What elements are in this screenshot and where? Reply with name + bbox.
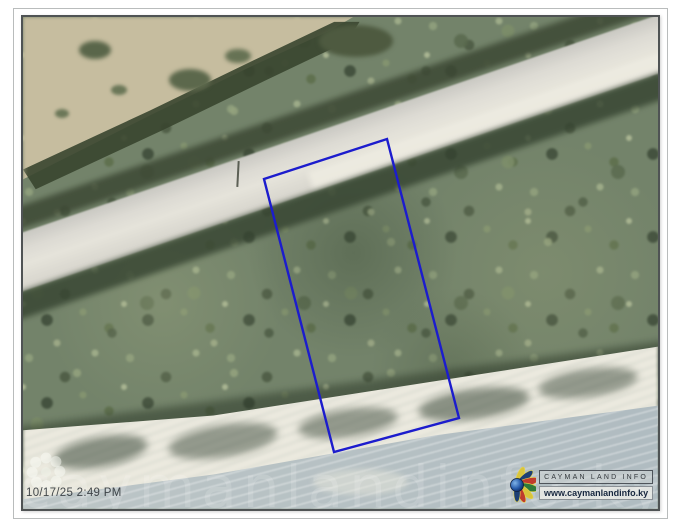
map-frame: caymanlandinfo.ky 10/17/25 2:49 PM [21, 15, 660, 511]
parcel-outline [264, 139, 459, 452]
logo-org-name: CAYMAN LAND INFO [539, 470, 653, 484]
logo-website-url: www.caymanlandinfo.ky [539, 486, 653, 500]
cayman-land-info-logo-icon [502, 466, 536, 504]
map-export-page: caymanlandinfo.ky 10/17/25 2:49 PM [0, 0, 675, 529]
aerial-photo: caymanlandinfo.ky 10/17/25 2:49 PM [23, 17, 658, 509]
outer-frame: caymanlandinfo.ky 10/17/25 2:49 PM [13, 8, 668, 519]
timestamp: 10/17/25 2:49 PM [26, 487, 122, 499]
parcel-boundary-layer [23, 17, 658, 509]
cayman-land-info-logo: CAYMAN LAND INFO www.caymanlandinfo.ky [502, 466, 653, 504]
